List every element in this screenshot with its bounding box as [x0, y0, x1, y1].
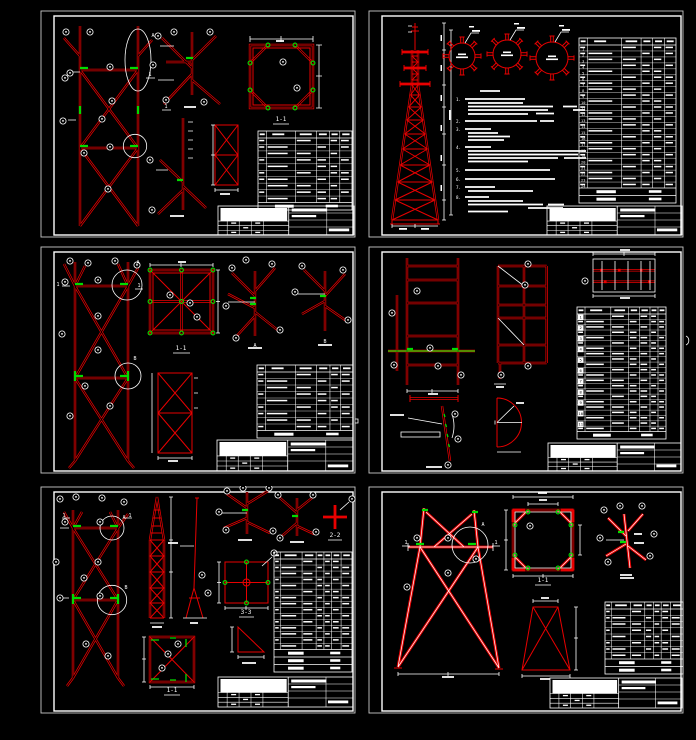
clip-mark [355, 419, 358, 423]
cad-canvas: { "app": {"description": "CAD drawing se… [0, 0, 696, 740]
clip-mark [686, 336, 689, 345]
overlay-marks [0, 0, 696, 740]
